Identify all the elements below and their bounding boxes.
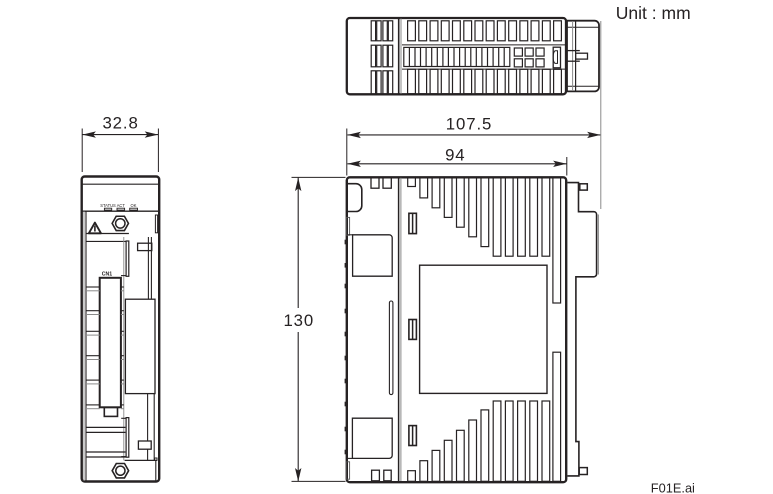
svg-text:107.5: 107.5 <box>446 114 493 133</box>
svg-text:CN1: CN1 <box>102 271 112 277</box>
svg-text:OK: OK <box>131 203 137 208</box>
svg-text:F01E.ai: F01E.ai <box>651 481 695 494</box>
svg-text:ACT: ACT <box>117 203 126 208</box>
svg-text:32.8: 32.8 <box>102 114 138 133</box>
svg-text:Unit : mm: Unit : mm <box>616 3 691 23</box>
svg-text:130: 130 <box>283 311 314 330</box>
svg-text:94: 94 <box>445 145 465 164</box>
svg-text:STATUS: STATUS <box>100 203 116 208</box>
